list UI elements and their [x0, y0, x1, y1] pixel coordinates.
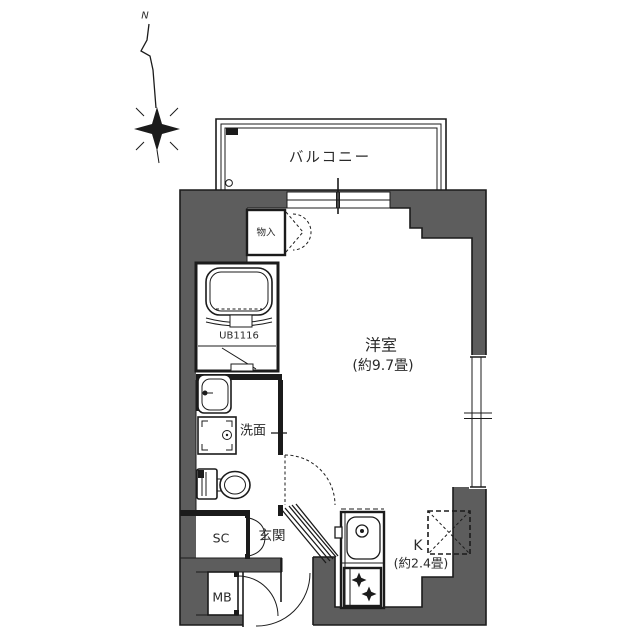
wall-sc-right	[246, 516, 250, 558]
bath-step	[230, 315, 252, 327]
compass-needle	[141, 24, 156, 108]
entrance-door-swing-outer	[256, 573, 310, 626]
meter-box-label: MB	[212, 590, 231, 605]
kitchen-size-label: (約2.4畳)	[394, 556, 449, 571]
compass-rose: N	[134, 11, 180, 164]
floor-plan: N バルコニー	[0, 0, 640, 640]
storage-folding-door	[286, 212, 303, 252]
wall-pier-entrance	[313, 557, 335, 625]
kitchen-faucet-lever	[335, 527, 342, 538]
wall-right-upper	[472, 238, 486, 357]
washroom-label: 洗面	[240, 424, 266, 439]
kitchen-faucet-dot	[360, 529, 364, 533]
storage-closet: 物入	[247, 210, 311, 255]
wall-washroom-right-upper	[278, 380, 283, 455]
mb-hinge-bottom	[234, 610, 239, 615]
storage-door-swing	[293, 214, 311, 250]
floor-plan-drawing: N バルコニー	[0, 0, 640, 640]
bath-label: UB1116	[219, 331, 259, 342]
sc-hinge-top	[245, 513, 250, 518]
toilet-flush	[198, 470, 204, 478]
unit-bath: UB1116	[196, 263, 278, 371]
wall-below-mb	[180, 615, 243, 625]
wall-step-topright-2	[422, 228, 486, 238]
bath-door-threshold	[231, 364, 253, 371]
balcony: バルコニー	[216, 119, 446, 190]
shoe-closet-label: SC	[213, 531, 230, 546]
balcony-drain	[226, 180, 233, 187]
compass-north-label: N	[141, 11, 149, 22]
storage-label: 物入	[256, 227, 276, 239]
balcony-marker	[226, 128, 238, 135]
entrance-step-hatch	[282, 504, 338, 563]
wall-bottom-right	[335, 607, 486, 625]
balcony-label: バルコニー	[289, 150, 371, 166]
wall-beside-mb	[196, 572, 208, 615]
washer-pan	[198, 417, 236, 454]
hall-door-swing	[285, 455, 335, 505]
washroom: 洗面	[180, 374, 335, 516]
wall-step-topright-1	[410, 208, 486, 228]
right-window	[464, 355, 492, 489]
sc-hinge-bottom	[245, 554, 250, 559]
washer-drain-dot	[226, 434, 228, 436]
entrance-door-swing-inner	[238, 576, 278, 616]
wall-front	[180, 558, 282, 572]
wall-right-lower	[453, 487, 486, 577]
entrance-label: 玄関	[259, 527, 286, 544]
wall-washroom-bottom	[180, 510, 250, 516]
wall-step-bottomright	[422, 577, 486, 607]
living-room-size-label: (約9.7畳)	[352, 358, 413, 374]
living-room-label: 洋室	[365, 336, 397, 355]
wall-block-topleft	[180, 195, 247, 263]
kitchen-label: K	[413, 538, 423, 554]
living-room: 洋室 (約9.7畳)	[352, 336, 413, 375]
balcony-sliding-door	[287, 178, 390, 214]
